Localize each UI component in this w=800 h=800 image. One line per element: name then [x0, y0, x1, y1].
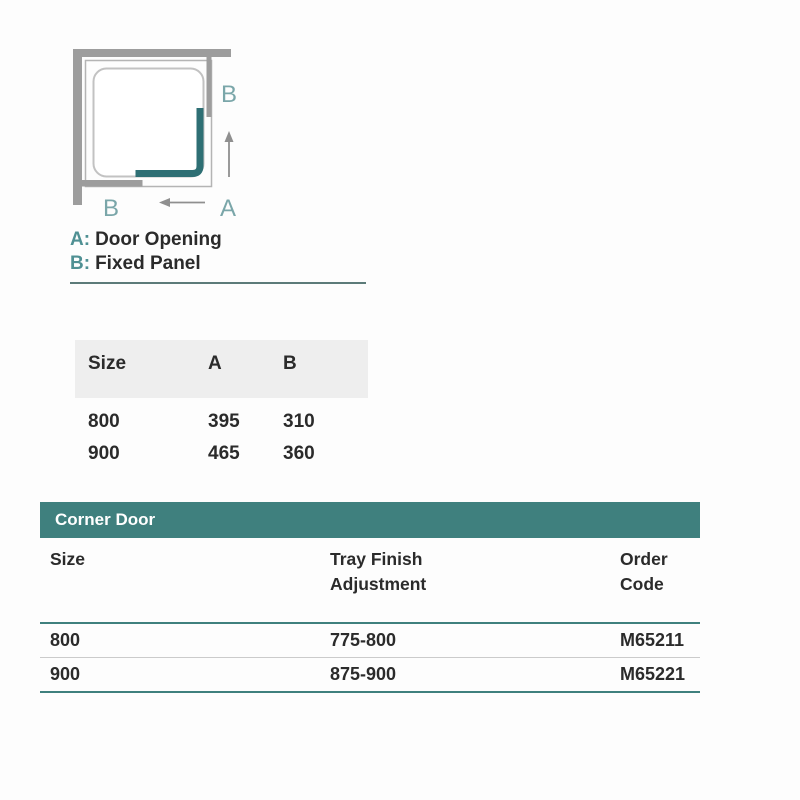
legend-key-b: B:	[70, 253, 90, 274]
table-row: 800 775-800 M65211	[40, 624, 700, 658]
size-cell: 800	[40, 630, 320, 651]
table-row: 900 465 360	[75, 438, 368, 470]
corner-door-order-table: Corner Door Size Tray Finish Adjustment …	[40, 502, 700, 693]
a-cell: 395	[208, 411, 283, 433]
size-table-col-size: Size	[75, 353, 208, 375]
size-dimensions-table: Size A B 800 395 310 900 465 360	[75, 340, 368, 470]
order-code-cell: M65211	[610, 630, 700, 651]
spec-sheet-page: B A B A:Door Opening B:Fixed Panel Size …	[0, 0, 800, 800]
size-cell: 800	[75, 411, 208, 433]
table-row: 900 875-900 M65221	[40, 658, 700, 691]
wall-top	[73, 49, 231, 57]
b-cell: 310	[283, 411, 368, 433]
size-cell: 900	[75, 443, 208, 465]
order-table-col-tray-finish: Tray Finish Adjustment	[320, 547, 610, 622]
legend-text-door-opening: Door Opening	[95, 229, 222, 250]
size-table-body: 800 395 310 900 465 360	[75, 398, 368, 470]
enclosure-diagram: B A B	[40, 30, 300, 230]
diagram-label-b-top: B	[221, 81, 237, 108]
arrow-left-icon	[159, 198, 205, 207]
arrow-up-icon	[225, 131, 234, 177]
legend-line-door-opening: A:Door Opening	[70, 228, 222, 252]
fixed-panel-bottom	[82, 180, 143, 187]
table-row: 800 395 310	[75, 406, 368, 438]
diagram-legend: A:Door Opening B:Fixed Panel	[70, 228, 222, 276]
legend-divider	[70, 282, 366, 284]
size-table-col-b: B	[283, 353, 368, 375]
order-code-cell: M65221	[610, 664, 700, 685]
order-table-col-size: Size	[40, 547, 320, 622]
diagram-label-b-bottom: B	[103, 195, 119, 222]
order-table-body: 800 775-800 M65211 900 875-900 M65221	[40, 622, 700, 693]
shower-tray	[94, 69, 204, 177]
legend-text-fixed-panel: Fixed Panel	[95, 253, 201, 274]
order-table-title: Corner Door	[40, 502, 700, 538]
wall-left	[73, 49, 82, 205]
diagram-label-a: A	[220, 195, 236, 222]
tray-finish-cell: 875-900	[320, 664, 610, 685]
size-table-header: Size A B	[75, 340, 368, 398]
fixed-panel-right	[207, 57, 212, 117]
a-cell: 465	[208, 443, 283, 465]
order-table-header: Size Tray Finish Adjustment Order Code	[40, 538, 700, 622]
legend-key-a: A:	[70, 229, 90, 250]
size-cell: 900	[40, 664, 320, 685]
size-table-col-a: A	[208, 353, 283, 375]
order-table-col-order-code: Order Code	[610, 547, 700, 622]
tray-finish-cell: 775-800	[320, 630, 610, 651]
b-cell: 360	[283, 443, 368, 465]
legend-line-fixed-panel: B:Fixed Panel	[70, 252, 222, 276]
